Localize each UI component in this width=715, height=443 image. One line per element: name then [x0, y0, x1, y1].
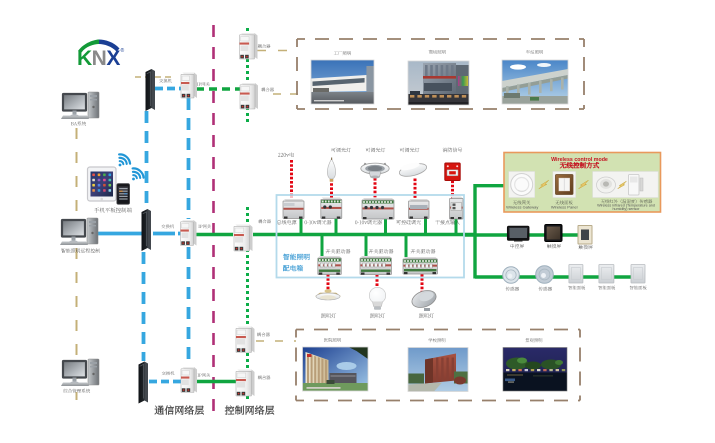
svg-text:Wireless Panel: Wireless Panel	[551, 204, 578, 209]
svg-text:humidity) sensor: humidity) sensor	[612, 207, 640, 211]
svg-text:KNX: KNX	[77, 47, 120, 70]
svg-text:Wireless Gateway: Wireless Gateway	[506, 204, 538, 209]
svg-text:Wireless control mode: Wireless control mode	[551, 157, 608, 163]
svg-text:®: ®	[121, 47, 125, 54]
